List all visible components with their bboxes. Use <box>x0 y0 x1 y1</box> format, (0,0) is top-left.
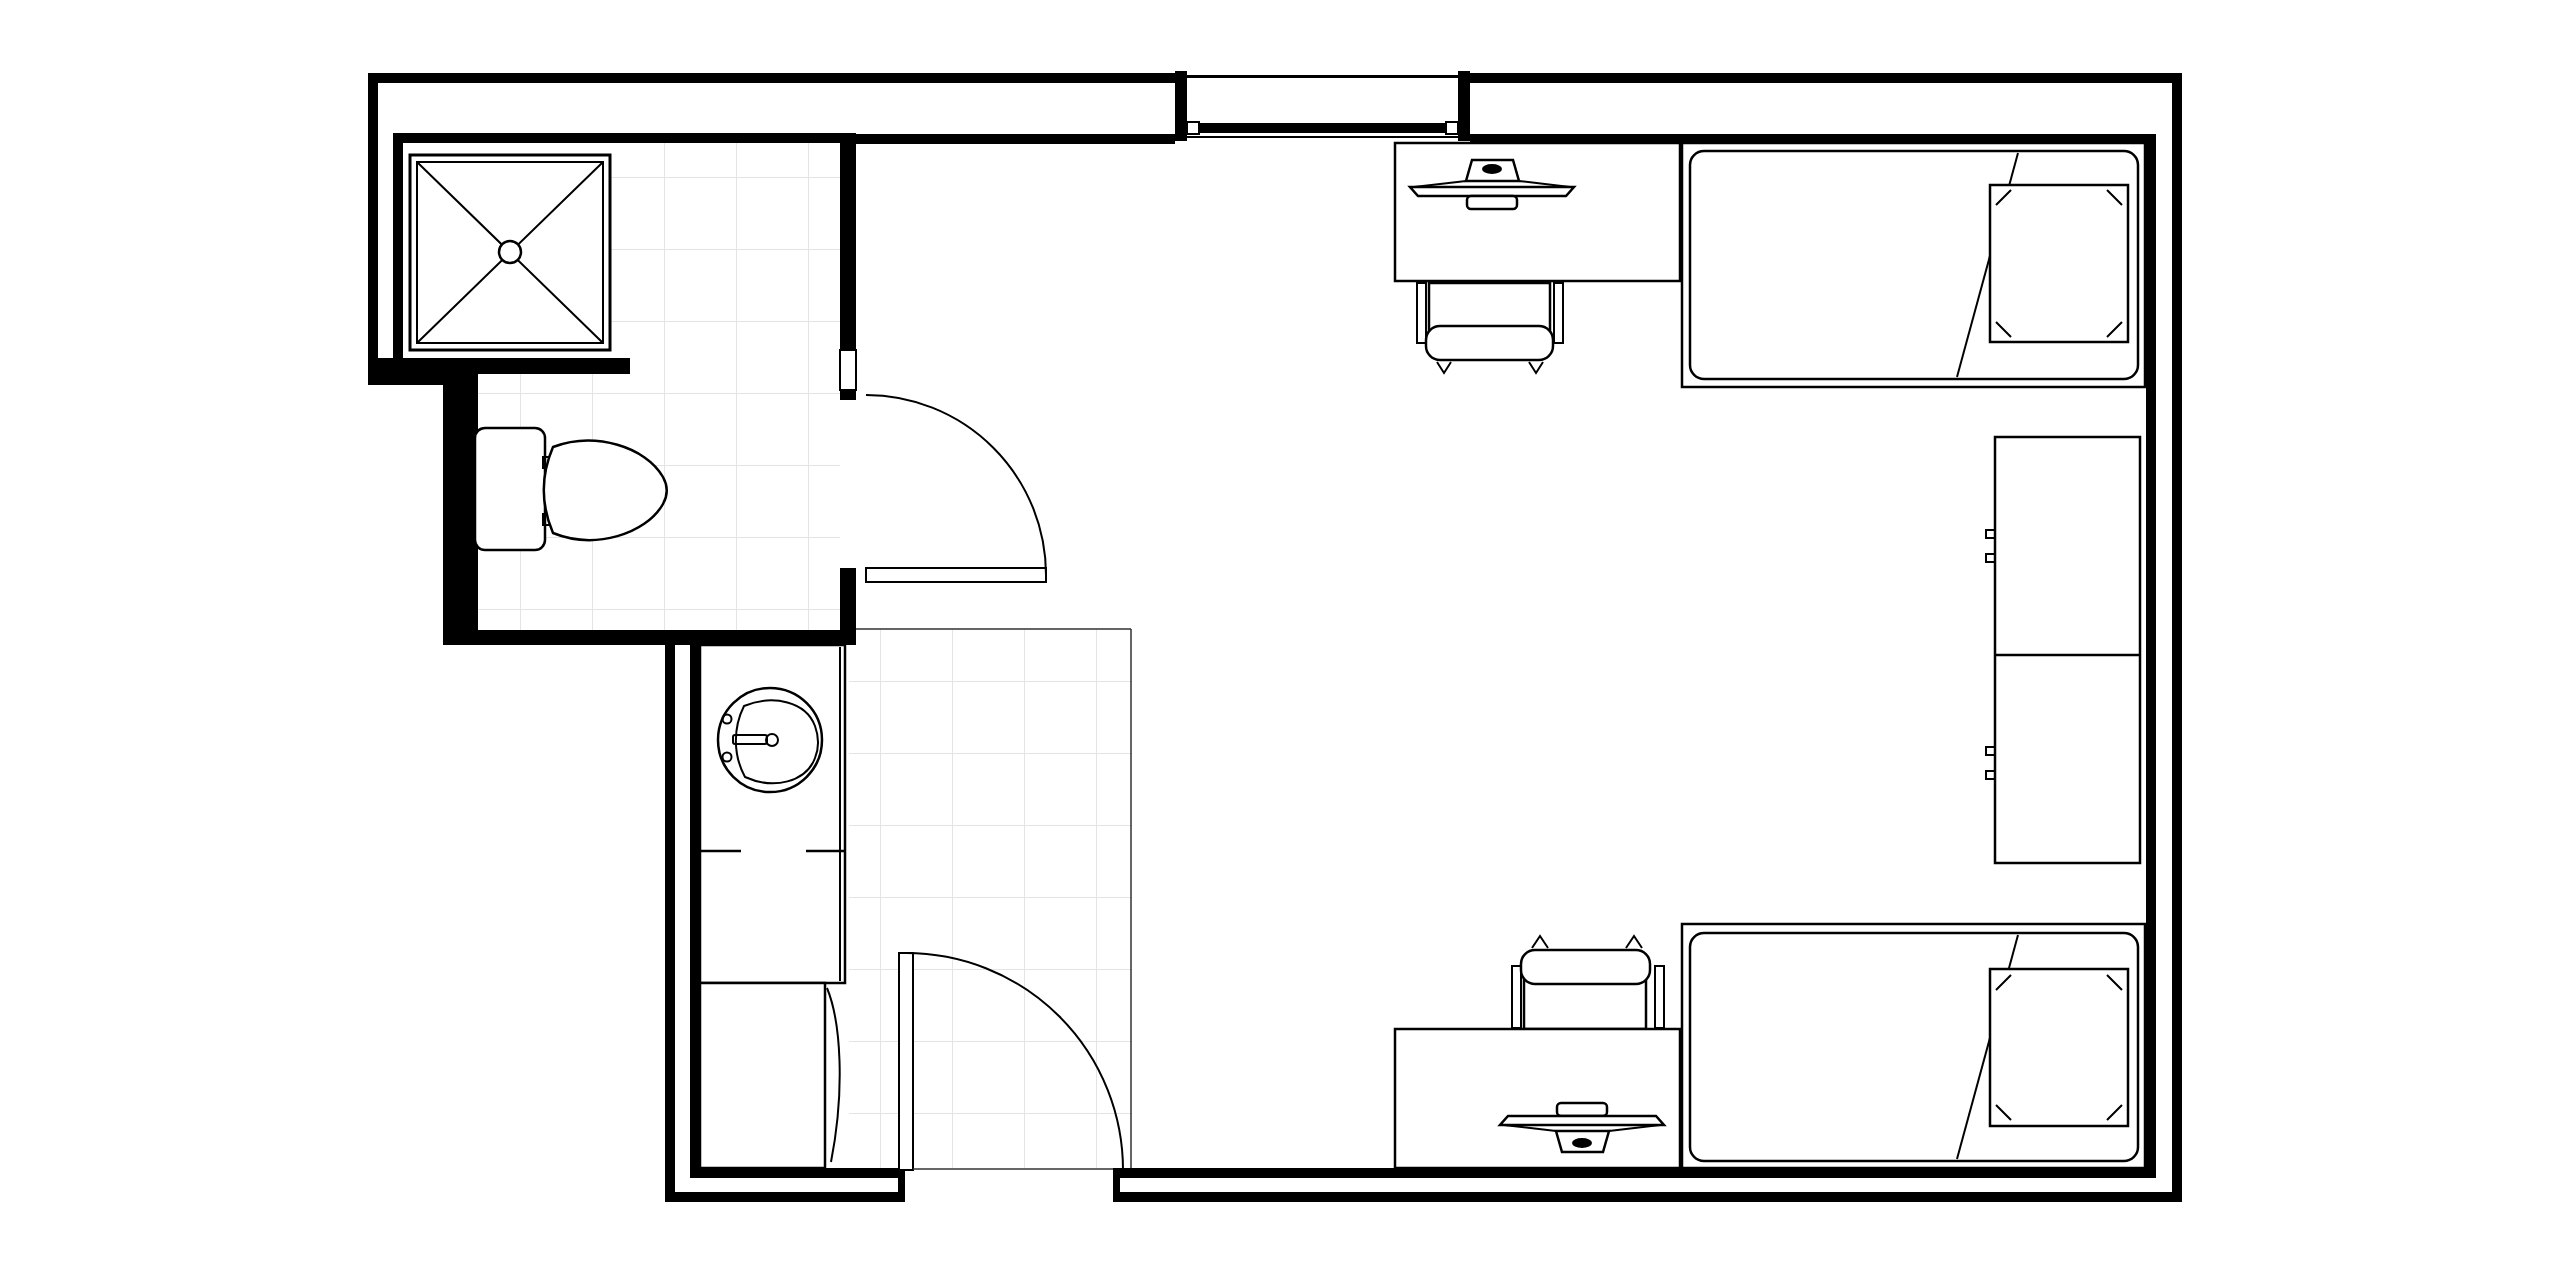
chair-2-armrest-right <box>1655 966 1664 1028</box>
entry-door-left-jamb-cap <box>898 1168 905 1202</box>
chair-2-armrest-left <box>1512 966 1521 1028</box>
chair-2-seat <box>1524 980 1646 1029</box>
monitor-1-base-oval <box>1482 164 1502 174</box>
bedroom-furniture <box>1395 143 2145 1168</box>
window <box>1175 71 1470 141</box>
shower <box>410 155 610 350</box>
exterior-wall-top-left <box>368 73 1175 83</box>
shower-drain <box>499 241 521 263</box>
chair-2-foot-right <box>1626 936 1642 948</box>
entry-door-right-jamb-cap <box>1113 1168 1120 1202</box>
bedroom-bottom-wall <box>1113 1168 2156 1178</box>
bathroom-door-swing-arc <box>866 395 1046 575</box>
monitor-2-base-oval <box>1572 1138 1592 1148</box>
vanity-area <box>700 645 845 1168</box>
window-sill-end-left <box>1187 122 1199 134</box>
desk-1-top <box>1395 143 1680 281</box>
window-sill-end-right <box>1446 122 1458 134</box>
wardrobe-handle-2 <box>1986 554 1995 562</box>
bathroom-door-top-jamb <box>840 390 856 400</box>
monitor-1-screen <box>1410 187 1574 196</box>
chair-2 <box>1512 936 1664 1029</box>
exterior-wall-top-right <box>1470 73 2182 83</box>
chair-2-backrest <box>1521 950 1650 984</box>
wardrobe-handle-1 <box>1986 530 1995 538</box>
chair-1-foot-right <box>1529 362 1543 373</box>
pillow-2 <box>1990 969 2128 1126</box>
bathroom-right-wall-upper <box>840 133 856 350</box>
chair-2-foot-left <box>1532 936 1548 948</box>
base-cabinet-curved-front <box>827 988 840 1162</box>
wardrobe-handle-4 <box>1986 771 1995 779</box>
bathroom-left-wall-stub <box>393 133 403 360</box>
bedroom-right-wall <box>2146 134 2156 1178</box>
monitor-2-screen <box>1500 1116 1664 1125</box>
bathroom-bottom-wall <box>443 630 856 645</box>
chair-1-backrest <box>1426 326 1553 360</box>
desk-1 <box>1395 143 1680 281</box>
base-cabinet-body <box>700 983 825 1168</box>
chair-1-foot-left <box>1437 362 1451 373</box>
wardrobe-handle-3 <box>1986 747 1995 755</box>
toilet-tank <box>475 428 545 550</box>
toilet-area-left-wall <box>443 374 478 630</box>
wardrobe-body <box>1995 437 2140 863</box>
bathroom-right-wall-hollow <box>840 350 856 390</box>
bathroom-right-wall-lower <box>840 568 856 645</box>
bedroom-top-wall-left <box>856 134 1175 144</box>
chair-1-armrest-left <box>1417 283 1426 343</box>
exterior-wall-left-upper <box>368 73 378 385</box>
base-cabinet <box>700 983 840 1168</box>
vestibule-tile-floor <box>849 629 1132 1168</box>
chair-1 <box>1417 283 1563 373</box>
window-sill <box>1190 123 1455 133</box>
wing-left-interior-wall <box>690 640 700 1178</box>
exterior-wall-bottom-left <box>665 1192 905 1202</box>
exterior-wall-wing-left <box>665 637 675 1202</box>
monitor-2-neck <box>1557 1103 1607 1116</box>
floor-plan-page: Dorm room floor plan with bathroom, entr… <box>0 0 2550 1276</box>
bathroom-door-leaf <box>866 568 1046 582</box>
desk-2-top <box>1395 1029 1680 1168</box>
shower-alcove-bottom-wall <box>378 358 630 374</box>
bed-2 <box>1682 924 2145 1168</box>
exterior-wall-right <box>2172 73 2182 1202</box>
window-right-jamb-block <box>1458 71 1470 141</box>
sink <box>718 688 822 792</box>
bathroom-top-wall <box>393 133 856 143</box>
chair-1-seat <box>1429 283 1550 332</box>
floor-plan-drawing: Dorm room floor plan with bathroom, entr… <box>0 0 2550 1276</box>
exterior-wall-bottom-right <box>1113 1192 2182 1202</box>
wing-bottom-interior-wall <box>690 1168 898 1178</box>
bed-1 <box>1682 143 2145 387</box>
pillow-1 <box>1990 185 2128 342</box>
monitor-1-neck <box>1467 196 1517 209</box>
wardrobe <box>1986 437 2140 863</box>
bathroom-door <box>866 395 1046 582</box>
desk-2 <box>1395 1029 1680 1168</box>
window-glass-line <box>1187 75 1458 78</box>
window-left-jamb-block <box>1175 71 1187 141</box>
entry-door-leaf <box>899 953 913 1170</box>
chair-1-armrest-right <box>1554 283 1563 343</box>
